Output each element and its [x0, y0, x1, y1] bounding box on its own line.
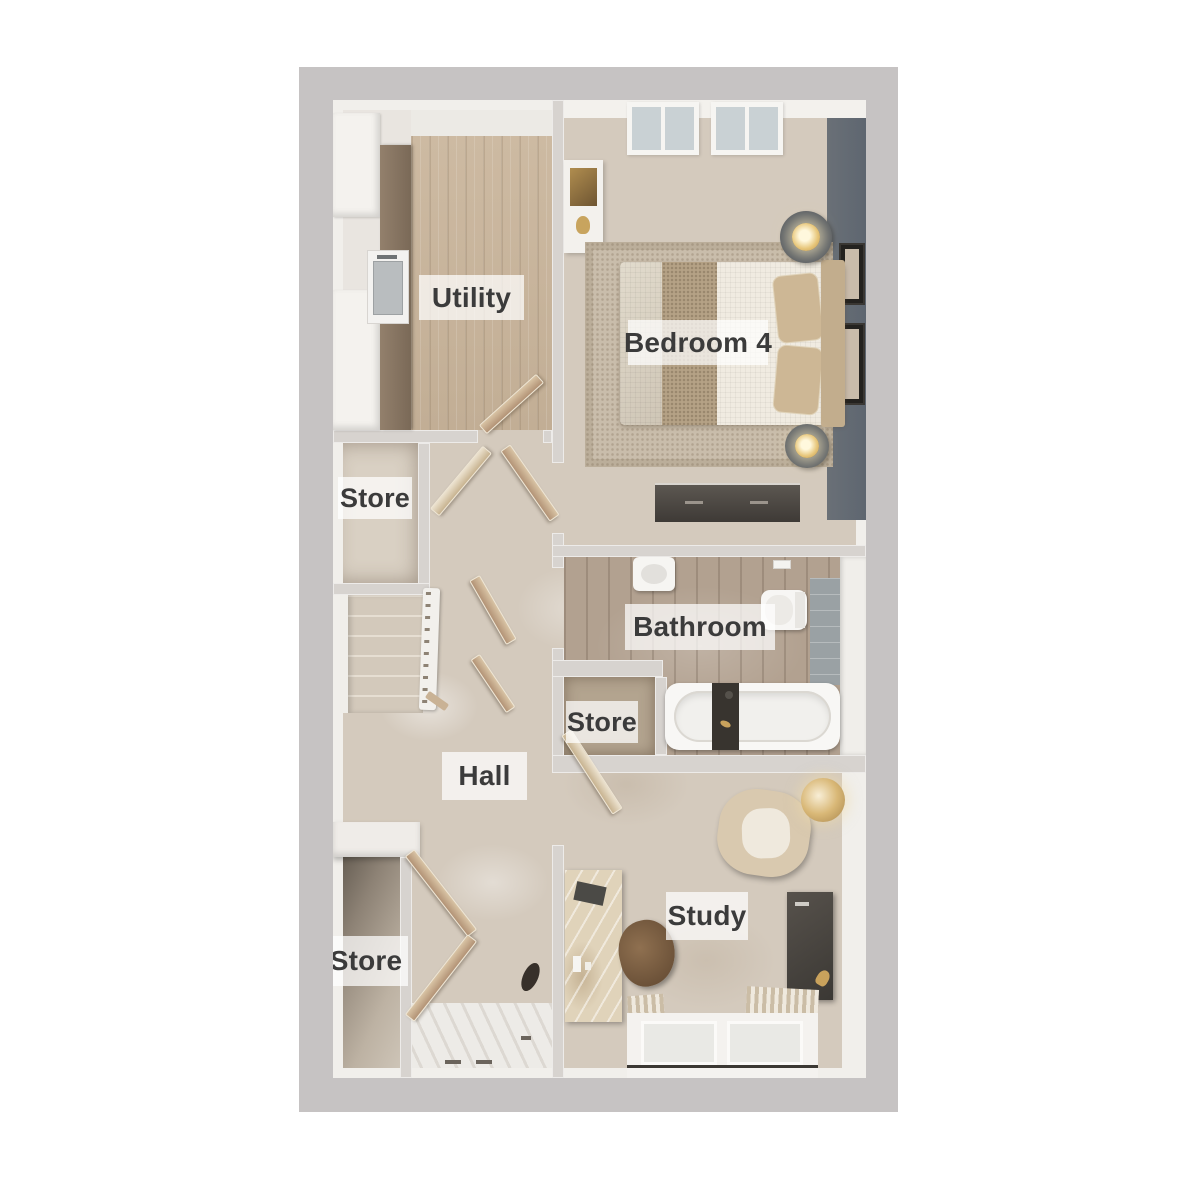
bathtub: [665, 683, 840, 750]
window-pane: [641, 1021, 717, 1065]
bathtub-basin: [674, 691, 831, 742]
store-upper-door: [430, 446, 492, 517]
floor-lamp: [801, 778, 845, 822]
room-label-bathroom: Bathroom: [625, 604, 775, 650]
bedroom-door: [500, 444, 559, 521]
bedroom-window-2: [711, 102, 783, 155]
window-mullion: [745, 107, 749, 150]
desk-papers: [573, 956, 581, 972]
study-right-wall-face: [842, 773, 866, 1078]
study-cabinet: [787, 892, 833, 1000]
picture-frame-art: [845, 249, 859, 299]
wall-utility-bottom-left: [333, 430, 478, 443]
washing-machine: [367, 250, 409, 324]
utility-cupboard: [333, 113, 380, 217]
floor-vent: [445, 1060, 461, 1064]
wall-bedroom-bottom: [552, 545, 866, 557]
wall-center-vertical-4: [552, 845, 564, 1078]
bedroom-window-1: [627, 102, 699, 155]
bed-pillow: [772, 272, 825, 344]
picture-frame-art: [845, 329, 859, 399]
room-label-hall: Hall: [442, 752, 527, 800]
floor-vent: [476, 1060, 492, 1064]
bedside-lamp: [792, 223, 820, 251]
washing-machine-door: [373, 261, 403, 315]
floor-plan-interior: Utility Bedroom 4 Store Bathroom Store H…: [333, 100, 866, 1078]
armchair-cushion: [741, 807, 791, 859]
wall-utility-bottom-right: [543, 430, 552, 443]
staircase: [348, 595, 423, 713]
bed-headboard: [821, 260, 845, 427]
shelf-artwork: [570, 168, 597, 206]
toilet-tank: [795, 592, 805, 628]
room-label-store-upper: Store: [338, 477, 412, 519]
stair-stringer: [340, 595, 348, 713]
curtain-rail: [627, 1065, 818, 1068]
page-background: Utility Bedroom 4 Store Bathroom Store H…: [0, 0, 1200, 1200]
wall-store-lower-top: [333, 822, 420, 857]
store-middle-door: [471, 654, 516, 713]
desk-item: [585, 962, 591, 970]
banister-spindles: [422, 592, 431, 704]
floor-plan: Utility Bedroom 4 Store Bathroom Store H…: [299, 67, 898, 1112]
shower-tiles: [810, 578, 840, 685]
wall-bathroom-bottom: [552, 755, 866, 773]
wall-store-upper-right: [418, 443, 430, 593]
shelf-ornament: [576, 216, 590, 234]
window-pane: [727, 1021, 803, 1065]
room-label-bedroom4: Bedroom 4: [628, 320, 768, 365]
wall-store-middle-top: [552, 660, 663, 677]
dresser-handle: [685, 501, 703, 504]
bath-faucet: [725, 691, 733, 699]
cabinet-detail: [795, 902, 809, 906]
wall-center-vertical-1: [552, 100, 564, 463]
bed-pillow: [772, 344, 824, 416]
study-window: [627, 1013, 818, 1078]
bathroom-cabinet: [840, 557, 866, 755]
sink-basin: [641, 564, 667, 584]
bathroom-sink: [633, 557, 675, 591]
bedroom-shelf: [564, 160, 603, 253]
dresser-handle: [750, 501, 768, 504]
hall-landing-floor: [407, 1003, 552, 1078]
room-label-study: Study: [666, 892, 748, 940]
wall-store-upper-bottom: [333, 583, 430, 595]
cabinet-ornament: [814, 968, 832, 988]
room-label-store-middle: Store: [566, 701, 638, 743]
towel-rail: [773, 560, 791, 569]
room-label-utility: Utility: [419, 275, 524, 320]
hall-floor-object: [518, 960, 544, 994]
bedroom-dresser: [655, 483, 800, 522]
floor-vent: [521, 1036, 531, 1040]
room-label-store-lower: Store: [333, 936, 408, 986]
window-mullion: [661, 107, 665, 150]
bedside-lamp: [795, 434, 819, 458]
washing-machine-panel: [377, 255, 397, 259]
bathroom-door: [469, 575, 516, 645]
store-lower-door-upper: [405, 849, 477, 937]
